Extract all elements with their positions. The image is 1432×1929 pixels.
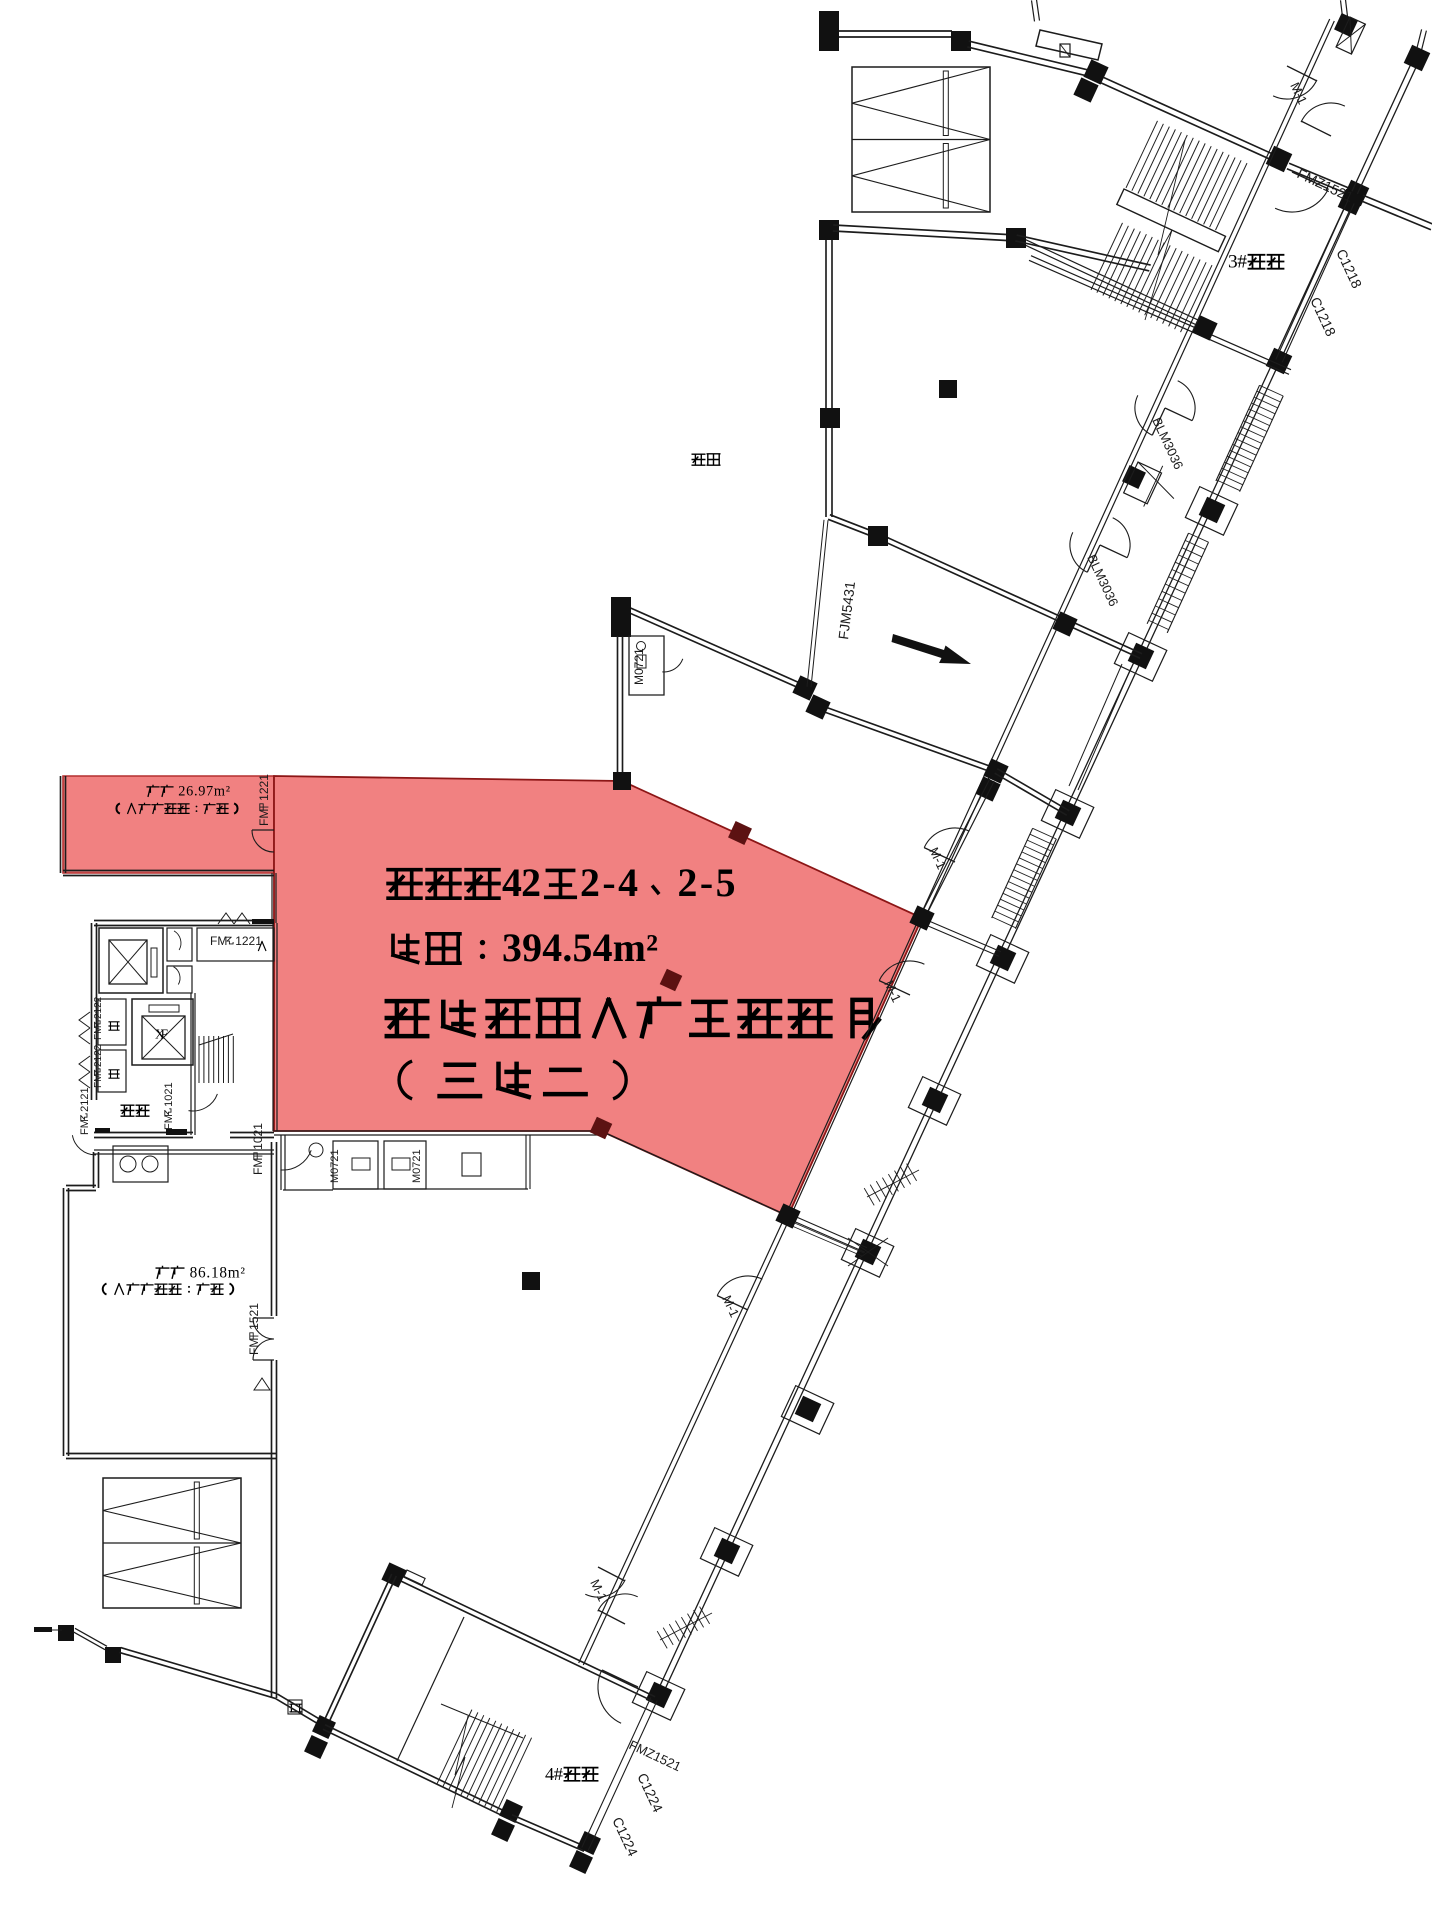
svg-text:FM: FM <box>210 934 227 948</box>
svg-text:1021: 1021 <box>251 1123 265 1150</box>
svg-text:394.54m²: 394.54m² <box>502 926 658 970</box>
svg-text:2121: 2121 <box>79 1087 91 1111</box>
svg-text:2-5: 2-5 <box>678 861 736 905</box>
svg-text:86.18m²: 86.18m² <box>185 1264 245 1281</box>
svg-text:XF: XF <box>155 1027 168 1042</box>
svg-text:2122: 2122 <box>93 996 104 1019</box>
svg-text:M0721: M0721 <box>632 648 646 685</box>
svg-text:1221: 1221 <box>235 934 262 948</box>
svg-text:4#: 4# <box>545 1764 563 1784</box>
svg-text:FM: FM <box>257 809 271 826</box>
svg-text:26.97m²: 26.97m² <box>174 784 230 800</box>
svg-text:M0721: M0721 <box>411 1149 423 1183</box>
svg-text:FM: FM <box>251 1158 265 1175</box>
svg-text:1021: 1021 <box>163 1082 175 1106</box>
svg-text:3#: 3# <box>1228 252 1247 273</box>
svg-text:2-4: 2-4 <box>580 861 638 905</box>
svg-text:M0721: M0721 <box>329 1149 341 1183</box>
svg-text:2122: 2122 <box>93 1044 104 1067</box>
svg-text:1221: 1221 <box>257 774 271 801</box>
svg-text:42: 42 <box>502 861 541 905</box>
